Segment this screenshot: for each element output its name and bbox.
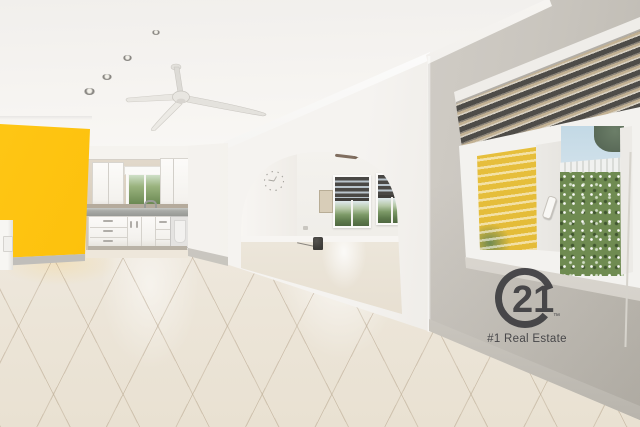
light-switch[interactable] xyxy=(3,236,13,252)
countertop xyxy=(86,208,188,216)
logo-number: 21 xyxy=(512,279,554,321)
listing-photo: 21 ™ #1 Real Estate xyxy=(0,0,640,427)
ceiling-fan xyxy=(112,58,282,143)
logo-tagline: #1 Real Estate xyxy=(487,333,567,345)
dishwasher[interactable] xyxy=(170,216,188,248)
appliance-panel xyxy=(174,220,186,243)
century21-watermark: 21 ™ #1 Real Estate xyxy=(477,252,581,356)
fan-blade xyxy=(187,96,266,116)
upper-cabinet-left[interactable] xyxy=(92,162,124,210)
kitchen xyxy=(86,146,188,258)
fan-blade xyxy=(151,102,182,131)
fan-blade xyxy=(126,94,174,102)
kitchen-floor xyxy=(86,250,188,258)
trademark-symbol: ™ xyxy=(553,313,560,320)
